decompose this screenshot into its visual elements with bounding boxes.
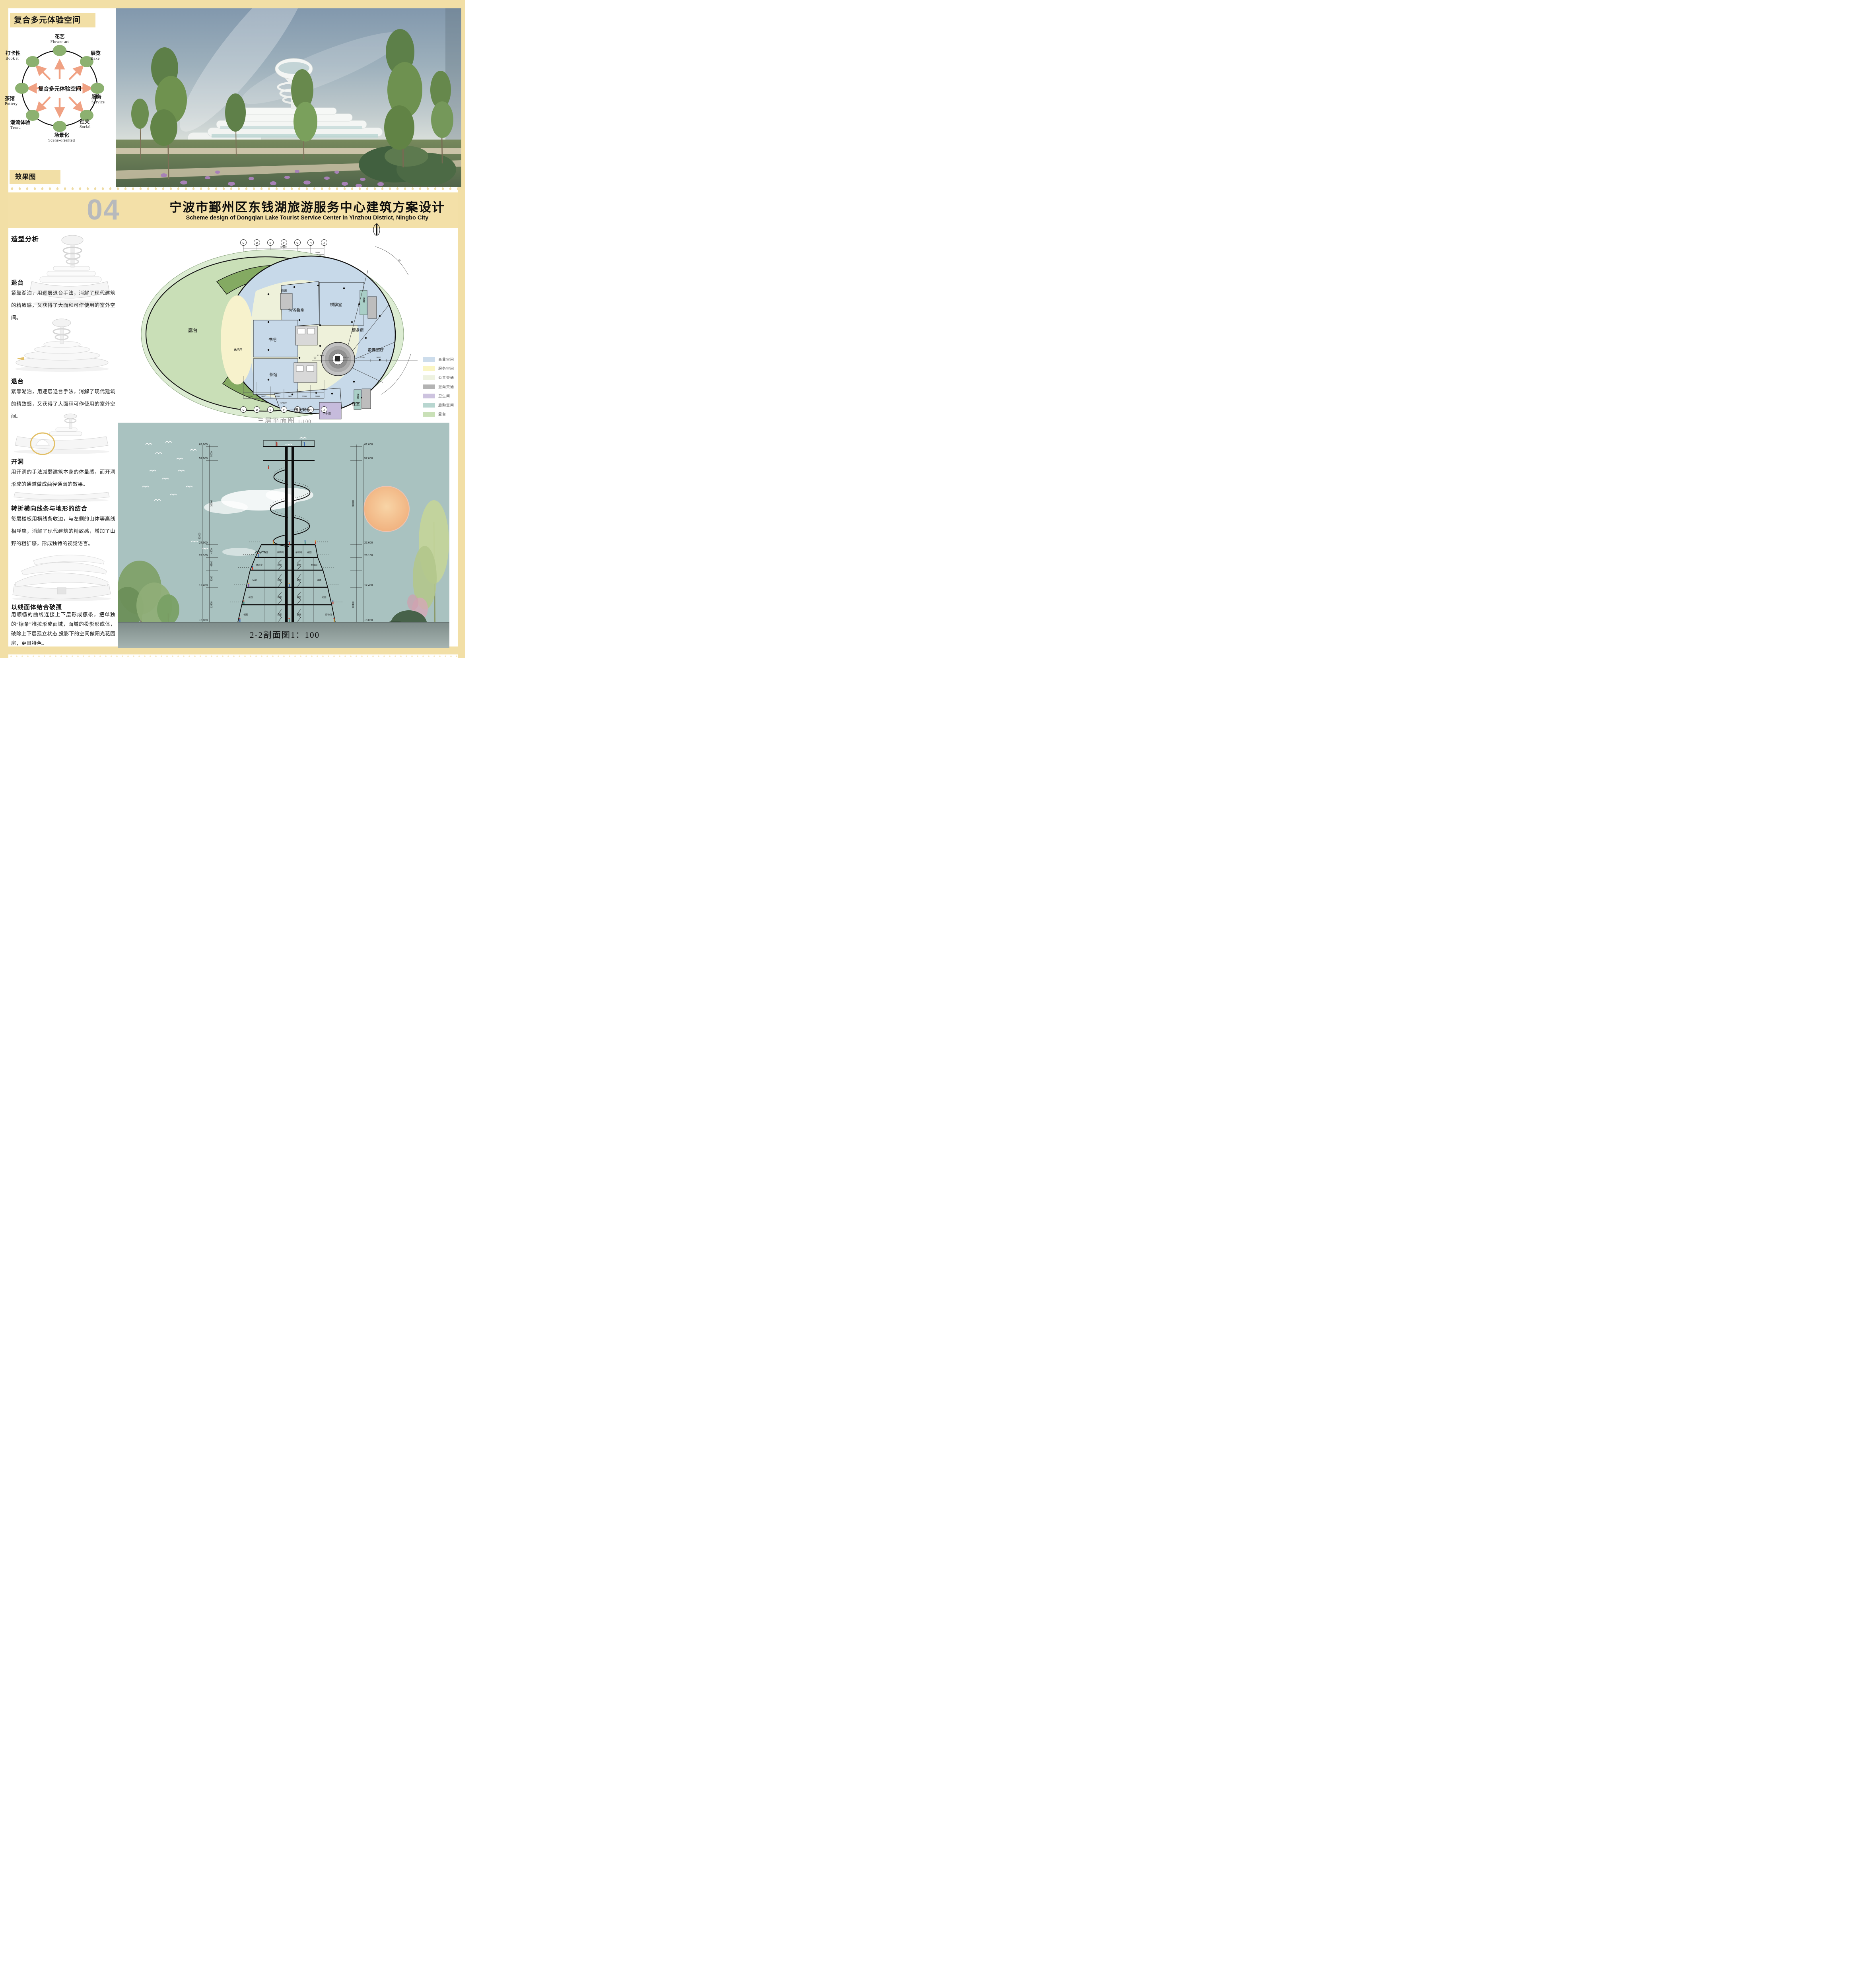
legend-swatch (423, 394, 435, 398)
section-title-setback-2: 退台 (11, 377, 24, 385)
model-image-setback-2 (12, 317, 112, 374)
room-label-dance-hall: 歌舞酒厅 (368, 347, 384, 353)
svg-text:62.600: 62.600 (199, 443, 208, 446)
node-trend: 潮流体验 Trend (10, 120, 45, 130)
room-label-billiard: 球室 (352, 401, 360, 407)
section-text-contour: 每层楼板用横线条收边，与左侧的山体等高线相呼应，消解了现代建筑的精致感，增加了山… (11, 513, 115, 550)
svg-text:9600: 9600 (288, 396, 293, 398)
diagram-center-label: 复合多元体验空间 (35, 84, 84, 92)
page-title: 宁波市鄞州区东钱湖旅游服务中心建筑方案设计 (159, 197, 455, 215)
svg-text:G: G (296, 242, 298, 245)
room-label-esports: 电竞娱乐 (294, 406, 310, 412)
svg-text:花园: 花园 (263, 551, 268, 554)
poster-page: 复合多元体验空间 (0, 0, 465, 658)
legend-label: 露台 (438, 412, 446, 417)
plan-legend: 商业空间 服务空间 公共交通 竖向交通 卫生间 后勤空间 露台 (423, 355, 457, 419)
legend-swatch (423, 403, 435, 408)
svg-text:花园: 花园 (322, 596, 327, 599)
section-title-opening: 开洞 (11, 457, 24, 466)
svg-text:前室: 前室 (297, 563, 301, 567)
svg-text:23.100: 23.100 (199, 554, 208, 557)
section-caption: 2-2剖面图1：100 (213, 629, 356, 641)
room-label-storage-bottom: 储藏 (355, 394, 359, 399)
section-title-setback-1: 退台 (11, 278, 24, 287)
room-label-chess: 棋牌室 (330, 301, 342, 307)
room-label-bath: 洗浴桑拿 (288, 307, 304, 313)
svg-text:布草间: 布草间 (311, 563, 318, 567)
svg-text:杂物间: 杂物间 (325, 613, 332, 616)
node-social: 社交 Social (80, 119, 104, 130)
node-checkin: 打卡性 Book it (6, 51, 37, 61)
svg-text:9600: 9600 (261, 396, 266, 398)
legend-item: 公共交通 (423, 374, 457, 383)
svg-text:J: J (323, 409, 325, 412)
legend-swatch (423, 375, 435, 380)
legend-item: 商业空间 (423, 355, 457, 365)
svg-text:前室: 前室 (297, 596, 301, 599)
svg-text:27.600: 27.600 (364, 542, 373, 544)
section-illustration: 62.600 57.600 27.600 23.100 12.400 ±0.00… (118, 423, 449, 648)
svg-text:9600: 9600 (315, 396, 320, 398)
svg-text:30000: 30000 (352, 500, 355, 507)
node-scene: 场景化 Scene-oriented (36, 133, 87, 143)
svg-text:62900: 62900 (199, 532, 201, 539)
legend-label: 卫生间 (438, 393, 450, 398)
floor-plan-drawing: C D E F G H J 57609 9600 9600 9600 9600 … (137, 223, 422, 421)
svg-text:9420: 9420 (344, 357, 348, 359)
legend-item: 竖向交通 (423, 383, 457, 392)
section-text-line-surface: 用顺畅的曲线连接上下层形成檩条，把单独的“檩条”推拉形成面域，面域的投影形成体，… (11, 610, 115, 648)
legend-label: 竖向交通 (438, 384, 454, 389)
plan-north-arrow (373, 223, 380, 235)
svg-text:F: F (283, 409, 285, 412)
section-sun (364, 486, 409, 532)
floor-plan: C D E F G H J 57609 9600 9600 9600 9600 … (137, 223, 422, 421)
legend-swatch (423, 384, 435, 389)
node-en: Bake (91, 56, 115, 61)
svg-text:9600: 9600 (315, 252, 320, 254)
svg-text:27.600: 27.600 (199, 542, 208, 544)
room-label-gym: 健身房 (352, 327, 364, 333)
legend-swatch (423, 412, 435, 417)
node-en: Trend (10, 125, 45, 130)
room-label-storage-top: 储藏 (361, 297, 365, 303)
legend-swatch (423, 366, 435, 371)
model-image-slab (12, 486, 111, 503)
svg-text:前室: 前室 (277, 579, 282, 582)
node-exhibition: 展览 Bake (91, 51, 115, 61)
svg-text:前室: 前室 (277, 613, 282, 616)
svg-text:花园: 花园 (248, 596, 253, 599)
svg-text:休息室: 休息室 (256, 563, 263, 567)
section-number: 04 (87, 192, 120, 228)
node-zh: 茶馆 (5, 96, 35, 101)
legend-label: 商业空间 (438, 357, 454, 362)
section-title-contour: 转折横向线条与地形的结合 (11, 504, 87, 513)
svg-text:12400: 12400 (211, 601, 213, 608)
svg-text:E: E (270, 409, 272, 412)
svg-text:9790: 9790 (360, 357, 364, 359)
svg-text:前室: 前室 (297, 613, 301, 616)
svg-text:57609: 57609 (280, 246, 286, 248)
svg-text:储藏: 储藏 (243, 613, 248, 616)
svg-text:12.400: 12.400 (317, 355, 324, 357)
node-en: Scene-oriented (36, 138, 87, 143)
svg-text:F: F (283, 242, 285, 245)
effect-image-label: 效果图 (10, 170, 60, 184)
svg-text:9600: 9600 (376, 357, 381, 359)
svg-text:23.100: 23.100 (364, 554, 373, 557)
svg-text:储藏: 储藏 (252, 579, 257, 582)
node-zh: 场景化 (36, 133, 87, 138)
svg-text:9600: 9600 (275, 396, 280, 398)
svg-text:杂物间: 杂物间 (295, 551, 302, 554)
svg-text:储藏: 储藏 (317, 579, 321, 582)
node-zh: 潮流体验 (10, 120, 45, 125)
legend-label: 公共交通 (438, 375, 454, 380)
room-label-tea-house: 茶馆 (269, 371, 277, 377)
svg-text:30000: 30000 (211, 500, 213, 507)
room-label-void: 上空 (334, 357, 339, 361)
node-en: Book it (6, 56, 37, 61)
svg-text:4500: 4500 (211, 561, 213, 567)
section-drawing: 62.600 57.600 27.600 23.100 12.400 ±0.00… (118, 423, 449, 648)
model-image-purlin (10, 548, 114, 602)
legend-label: 服务空间 (438, 366, 454, 371)
svg-text:C: C (242, 242, 244, 245)
node-en: Service (91, 100, 116, 105)
effect-image-label-text: 效果图 (15, 173, 36, 181)
svg-text:D: D (256, 242, 258, 245)
room-label-book-bar: 书吧 (268, 336, 276, 342)
svg-text:D: D (256, 409, 258, 412)
svg-text:9600: 9600 (248, 396, 253, 398)
legend-item: 露台 (423, 410, 457, 419)
svg-text:±0.000: ±0.000 (199, 619, 208, 622)
svg-text:前室: 前室 (277, 563, 282, 567)
node-en: Flower art (42, 39, 78, 45)
svg-text:30°: 30° (397, 259, 402, 263)
svg-text:J: J (323, 242, 325, 245)
node-en: Pottery (5, 101, 35, 107)
svg-text:57.600: 57.600 (364, 457, 373, 460)
svg-text:9600: 9600 (302, 396, 307, 398)
node-en: Social (80, 124, 104, 130)
svg-text:5000: 5000 (211, 451, 213, 457)
border-top (0, 0, 465, 8)
svg-text:杂物间: 杂物间 (277, 551, 284, 554)
svg-text:E: E (270, 242, 272, 245)
node-zh: 展览 (91, 51, 115, 56)
legend-label: 后勤空间 (438, 402, 454, 408)
room-label-lounge: 休闲厅 (234, 348, 242, 352)
model-image-opening (11, 414, 112, 456)
rendering-illustration (116, 8, 461, 187)
node-zh: 花艺 (42, 34, 78, 39)
page-subtitle: Scheme design of Dongqian Lake Tourist S… (159, 215, 455, 221)
svg-text:花园: 花园 (307, 551, 312, 554)
svg-text:C: C (242, 409, 244, 412)
node-zh: 打卡性 (6, 51, 37, 56)
dotted-separator-bottom (8, 655, 458, 658)
legend-swatch (423, 357, 435, 362)
legend-item: 后勤空间 (423, 401, 457, 410)
svg-text:6200: 6200 (211, 576, 213, 581)
svg-text:前室: 前室 (277, 596, 282, 599)
svg-text:12400: 12400 (352, 601, 355, 608)
node-teahouse: 茶馆 Pottery (5, 96, 35, 107)
svg-text:前室: 前室 (297, 579, 301, 582)
svg-text:57.600: 57.600 (199, 457, 208, 460)
node-zh: 服务 (91, 95, 116, 100)
node-zh: 社交 (80, 119, 104, 124)
room-label-terrace: 露台 (188, 327, 198, 334)
svg-text:±0.000: ±0.000 (364, 619, 373, 622)
svg-text:57609: 57609 (280, 402, 286, 404)
svg-text:62.600: 62.600 (364, 443, 373, 446)
node-service: 服务 Service (91, 95, 116, 105)
svg-text:H: H (309, 242, 311, 245)
diagram-header: 复合多元体验空间 (10, 13, 95, 27)
node-flower-art: 花艺 Flower art (42, 34, 78, 45)
svg-text:12.400: 12.400 (364, 584, 373, 587)
legend-item: 服务空间 (423, 365, 457, 374)
svg-text:4500: 4500 (211, 548, 213, 554)
room-label-garden: 花园 (281, 289, 287, 293)
diagram-header-label: 复合多元体验空间 (14, 16, 81, 25)
rendering-image (116, 8, 461, 187)
svg-text:12.400: 12.400 (199, 584, 208, 587)
legend-item: 卫生间 (423, 392, 457, 401)
